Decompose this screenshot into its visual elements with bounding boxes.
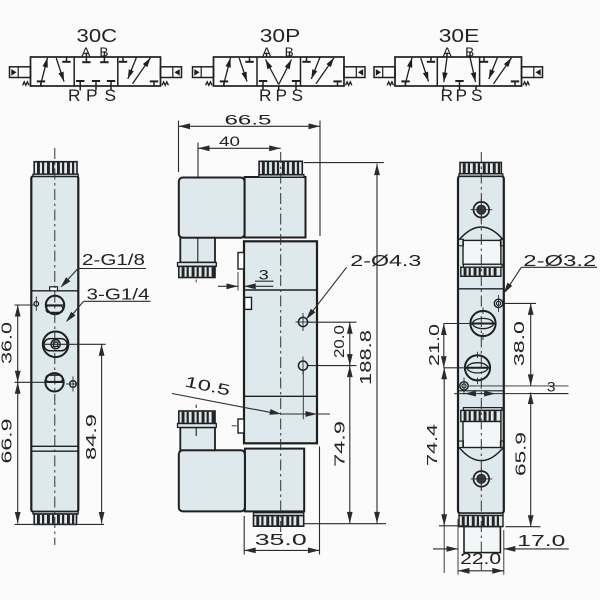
- svg-text:R: R: [259, 86, 272, 105]
- svg-text:21.0: 21.0: [427, 324, 443, 366]
- svg-text:66.5: 66.5: [225, 113, 272, 128]
- svg-text:66.9: 66.9: [0, 419, 16, 464]
- svg-text:30E: 30E: [439, 26, 480, 46]
- svg-text:R: R: [440, 86, 453, 105]
- svg-text:17.0: 17.0: [517, 533, 565, 550]
- svg-text:84.9: 84.9: [83, 414, 100, 460]
- svg-text:S: S: [291, 86, 303, 105]
- svg-text:30P: 30P: [260, 26, 301, 46]
- svg-text:74.9: 74.9: [332, 421, 349, 467]
- svg-text:2-Ø4.3: 2-Ø4.3: [350, 253, 421, 270]
- svg-text:S: S: [471, 86, 483, 105]
- svg-text:74.4: 74.4: [424, 424, 441, 466]
- svg-text:3: 3: [547, 380, 556, 395]
- svg-text:P: P: [275, 86, 287, 105]
- svg-text:188.8: 188.8: [358, 330, 375, 385]
- svg-text:3: 3: [259, 267, 270, 283]
- svg-text:30C: 30C: [77, 26, 118, 46]
- svg-text:P: P: [455, 86, 467, 105]
- svg-text:20.0: 20.0: [332, 325, 348, 358]
- svg-text:65.9: 65.9: [513, 432, 530, 476]
- svg-text:38.0: 38.0: [511, 321, 528, 366]
- svg-text:22.0: 22.0: [460, 551, 501, 568]
- svg-text:36.0: 36.0: [0, 322, 16, 364]
- svg-text:40: 40: [219, 134, 240, 149]
- svg-text:35.0: 35.0: [255, 532, 308, 549]
- svg-text:2-G1/8: 2-G1/8: [82, 252, 145, 269]
- svg-text:R: R: [68, 86, 81, 105]
